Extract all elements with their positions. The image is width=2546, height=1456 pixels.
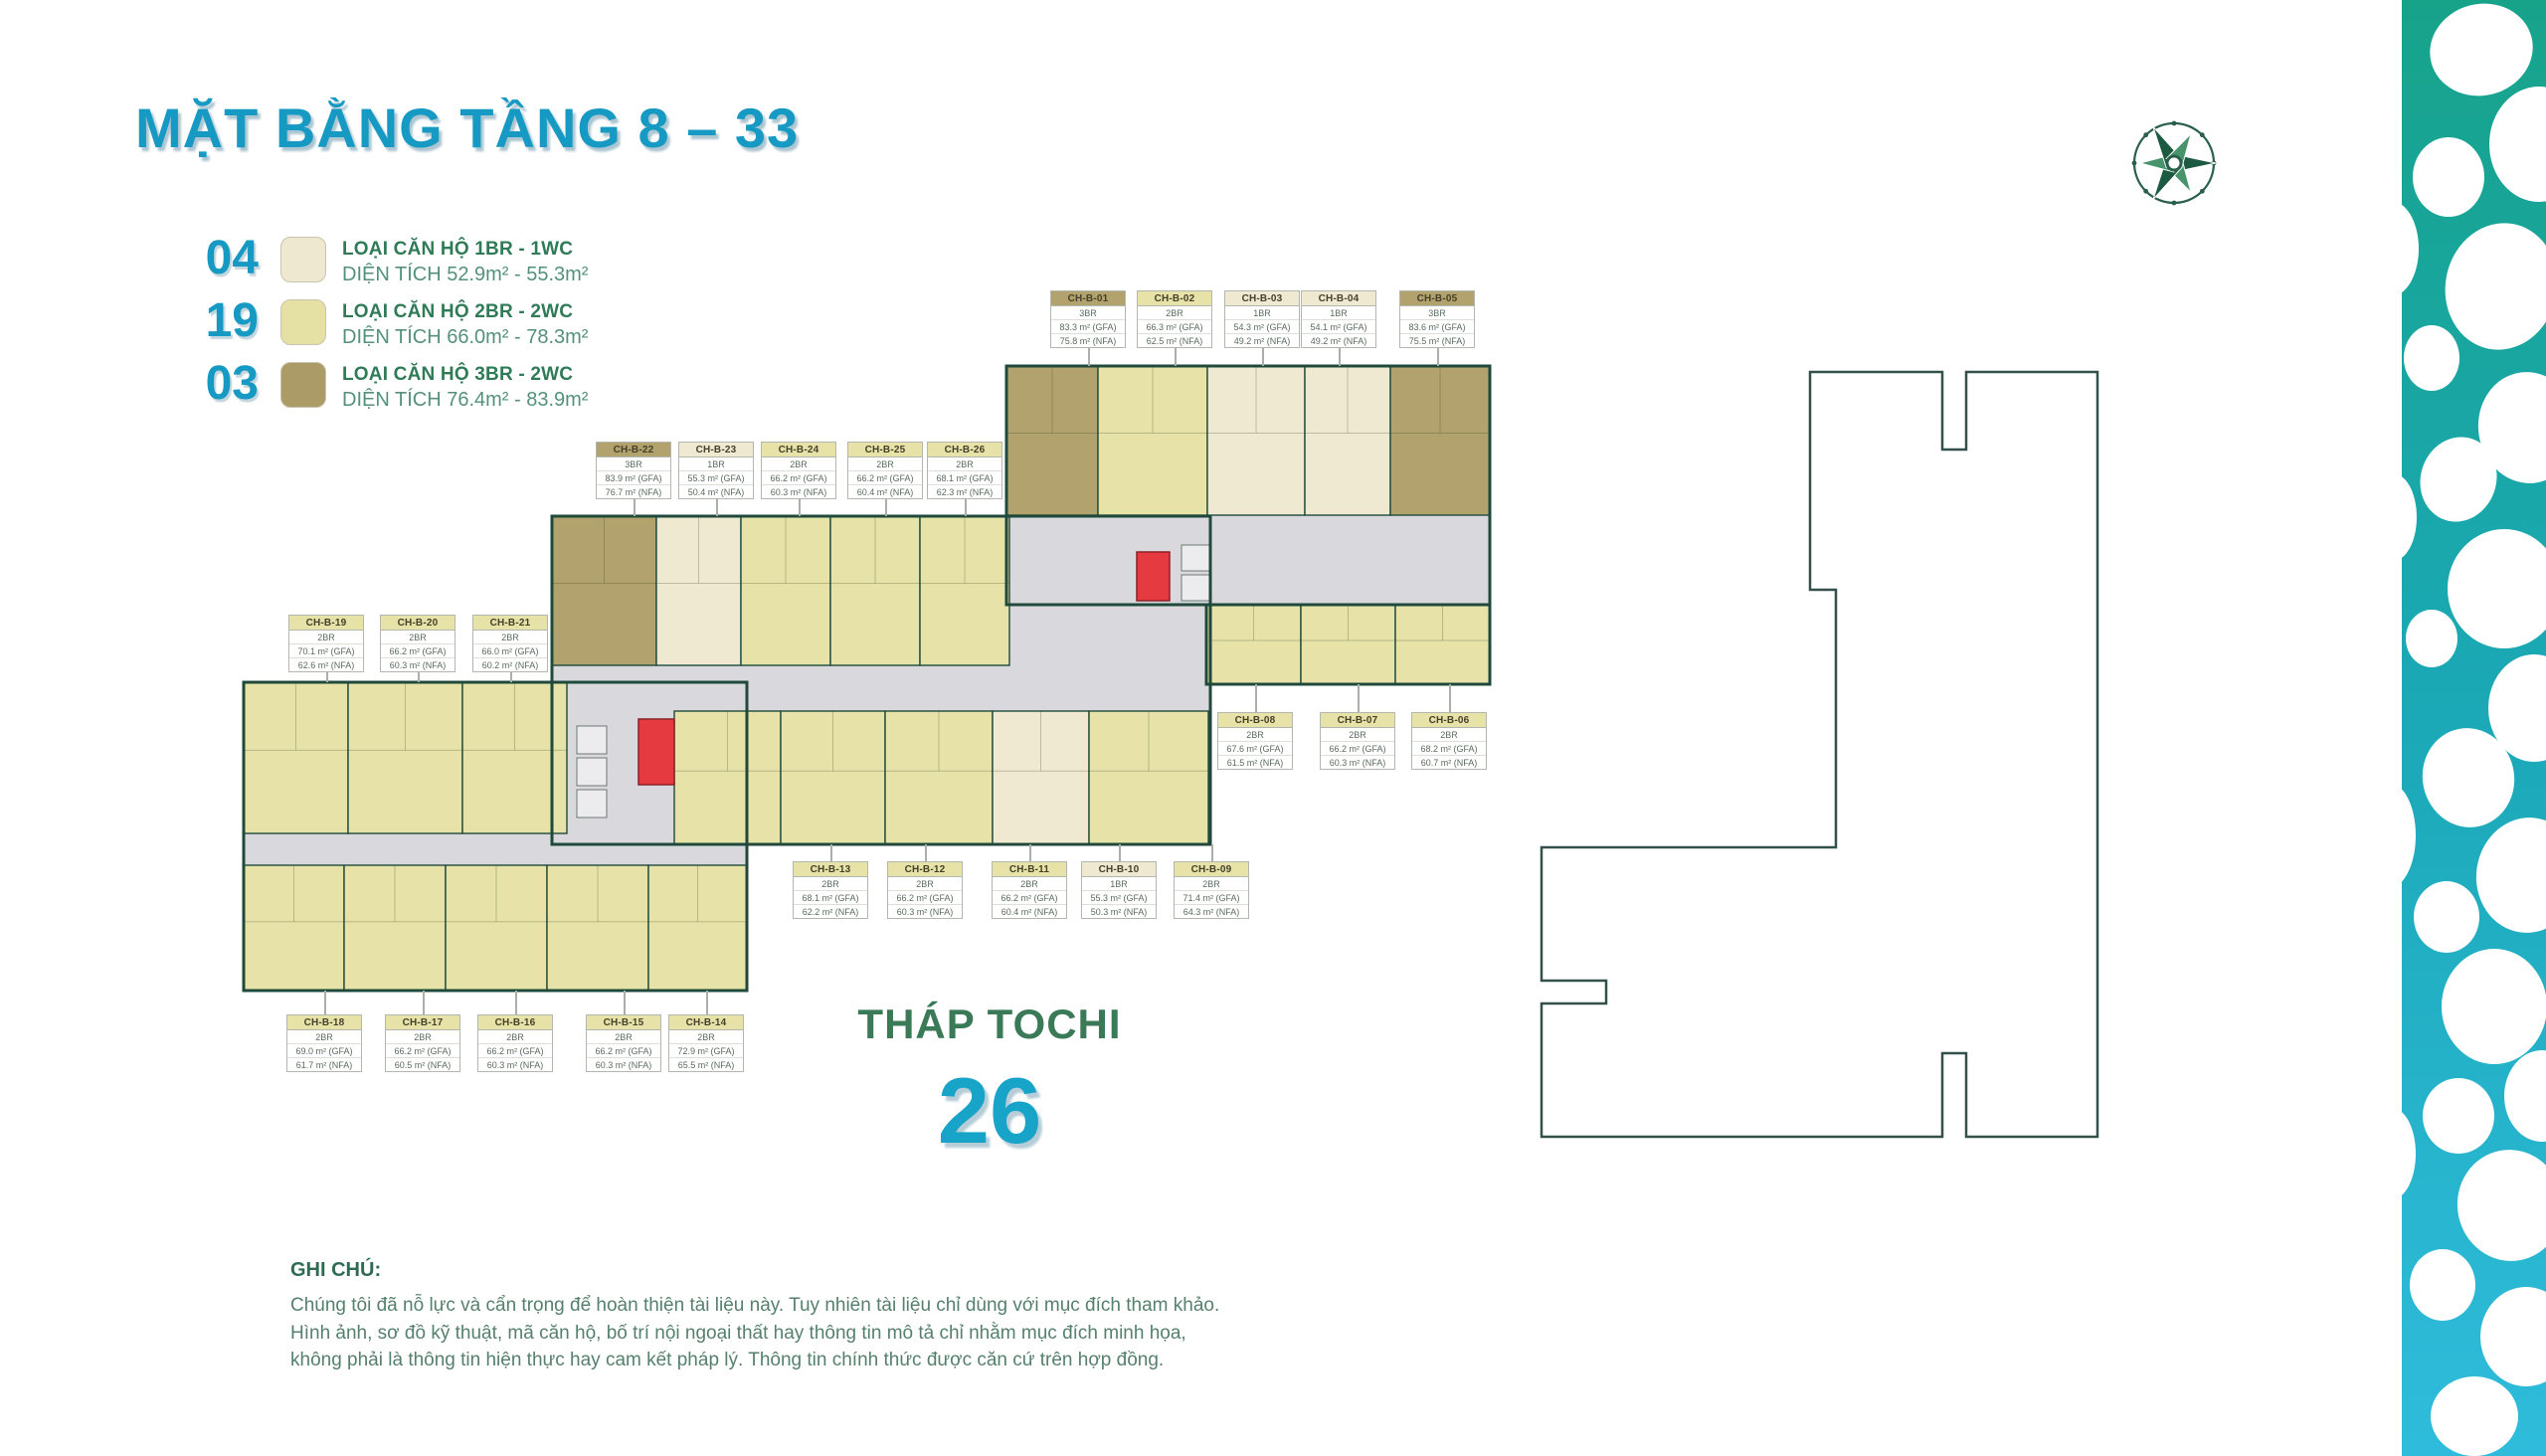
unit-type: 2BR [289,631,363,644]
leader-line [1339,348,1341,366]
unit-code: CH-B-03 [1225,291,1299,306]
unit-gfa: 66.2 m² (GFA) [848,471,922,485]
legend-area-1br: DIỆN TÍCH 52.9m² - 55.3m² [342,264,588,286]
unit-gfa: 68.1 m² (GFA) [794,891,867,905]
unit-nfa: 60.5 m² (NFA) [386,1058,459,1071]
leader-line [1449,684,1451,712]
leader-line [515,991,517,1014]
unit-type: 1BR [679,457,753,471]
legend-label-1br: LOẠI CĂN HỘ 1BR - 1WC [342,239,588,261]
unit-code: CH-B-11 [993,862,1066,877]
unit-tag-CH-B-03: CH-B-031BR54.3 m² (GFA)49.2 m² (NFA) [1224,290,1300,348]
unit-nfa: 61.5 m² (NFA) [1218,756,1292,769]
unit-type: 2BR [287,1030,361,1044]
unit-code: CH-B-20 [381,616,455,631]
unit-code: CH-B-16 [478,1015,552,1030]
leader-line [1211,844,1213,861]
leader-line [706,991,708,1014]
unit-tag-CH-B-16: CH-B-162BR66.2 m² (GFA)60.3 m² (NFA) [477,1014,553,1072]
unit-gfa: 66.2 m² (GFA) [587,1044,660,1058]
leader-line [830,844,832,861]
unit-code: CH-B-12 [888,862,962,877]
unit-type: 3BR [597,457,670,471]
unit-code: CH-B-02 [1138,291,1211,306]
unit-type: 2BR [928,457,1001,471]
unit-type: 2BR [1321,728,1394,742]
unit-code: CH-B-09 [1175,862,1248,877]
leader-line [624,991,626,1014]
unit-nfa: 75.5 m² (NFA) [1400,334,1474,347]
unit-gfa: 71.4 m² (GFA) [1175,891,1248,905]
developer-logo-icon [2124,111,2224,211]
legend-row-1br: 04 LOẠI CĂN HỘ 1BR - 1WC DIỆN TÍCH 52.9m… [179,237,588,282]
leader-line [1255,684,1257,712]
leader-line [1088,348,1090,366]
unit-gfa: 67.6 m² (GFA) [1218,742,1292,756]
unit-type: 2BR [478,1030,552,1044]
unit-gfa: 66.2 m² (GFA) [386,1044,459,1058]
unit-tag-CH-B-21: CH-B-212BR66.0 m² (GFA)60.2 m² (NFA) [472,615,548,672]
unit-gfa: 83.9 m² (GFA) [597,471,670,485]
unit-nfa: 60.4 m² (NFA) [993,905,1066,918]
legend-swatch-2br [280,299,326,345]
legend-area-2br: DIỆN TÍCH 66.0m² - 78.3m² [342,326,588,349]
unit-type: 2BR [888,877,962,891]
leader-line [1262,348,1264,366]
unit-type: 2BR [1412,728,1486,742]
legend-swatch-1br [280,237,326,282]
unit-tag-CH-B-26: CH-B-262BR68.1 m² (GFA)62.3 m² (NFA) [927,442,1002,499]
unit-gfa: 68.2 m² (GFA) [1412,742,1486,756]
unit-code: CH-B-23 [679,443,753,457]
unit-type: 3BR [1051,306,1125,320]
unit-tag-CH-B-05: CH-B-053BR83.6 m² (GFA)75.5 m² (NFA) [1399,290,1475,348]
unit-nfa: 65.5 m² (NFA) [669,1058,743,1071]
unit-type: 2BR [794,877,867,891]
unit-type: 2BR [381,631,455,644]
leader-line [1437,348,1439,366]
legend-row-2br: 19 LOẠI CĂN HỘ 2BR - 2WC DIỆN TÍCH 66.0m… [179,299,588,345]
unit-code: CH-B-26 [928,443,1001,457]
unit-type: 1BR [1302,306,1375,320]
unit-gfa: 83.3 m² (GFA) [1051,320,1125,334]
unit-code: CH-B-14 [669,1015,743,1030]
unit-nfa: 62.5 m² (NFA) [1138,334,1211,347]
unit-gfa: 66.2 m² (GFA) [762,471,835,485]
unit-code: CH-B-01 [1051,291,1125,306]
leader-line [1029,844,1031,861]
unit-tag-CH-B-07: CH-B-072BR66.2 m² (GFA)60.3 m² (NFA) [1320,712,1395,770]
unit-code: CH-B-21 [473,616,547,631]
lift-shape [577,726,607,754]
unit-type: 2BR [669,1030,743,1044]
unit-code: CH-B-06 [1412,713,1486,728]
legend-count-1br: 04 [179,237,259,280]
unit-tag-CH-B-04: CH-B-041BR54.1 m² (GFA)49.2 m² (NFA) [1301,290,1376,348]
unit-gfa: 66.2 m² (GFA) [888,891,962,905]
unit-gfa: 66.2 m² (GFA) [381,644,455,658]
unit-nfa: 49.2 m² (NFA) [1225,334,1299,347]
unit-nfa: 60.3 m² (NFA) [381,658,455,671]
unit-tag-CH-B-23: CH-B-231BR55.3 m² (GFA)50.4 m² (NFA) [678,442,754,499]
unit-tag-CH-B-24: CH-B-242BR66.2 m² (GFA)60.3 m² (NFA) [761,442,836,499]
unit-gfa: 66.3 m² (GFA) [1138,320,1211,334]
corridor-shape [1009,516,1210,665]
unit-code: CH-B-10 [1082,862,1156,877]
unit-gfa: 70.1 m² (GFA) [289,644,363,658]
leader-line [324,991,326,1014]
leader-line [326,672,328,682]
lift-shape [577,758,607,786]
pebble-pattern-decoration [2377,0,2546,1456]
tower-name: THÁP TOCHI [791,1001,1188,1048]
unit-tag-CH-B-02: CH-B-022BR66.3 m² (GFA)62.5 m² (NFA) [1137,290,1212,348]
unit-gfa: 55.3 m² (GFA) [679,471,753,485]
unit-gfa: 55.3 m² (GFA) [1082,891,1156,905]
unit-tag-CH-B-17: CH-B-172BR66.2 m² (GFA)60.5 m² (NFA) [385,1014,460,1072]
page-title: MẶT BẰNG TẦNG 8 – 33 [135,95,799,160]
unit-tag-CH-B-20: CH-B-202BR66.2 m² (GFA)60.3 m² (NFA) [380,615,455,672]
unit-gfa: 66.2 m² (GFA) [478,1044,552,1058]
unit-nfa: 62.3 m² (NFA) [928,485,1001,498]
unit-gfa: 54.3 m² (GFA) [1225,320,1299,334]
unit-tag-CH-B-13: CH-B-132BR68.1 m² (GFA)62.2 m² (NFA) [793,861,868,919]
unit-tag-CH-B-14: CH-B-142BR72.9 m² (GFA)65.5 m² (NFA) [668,1014,744,1072]
unit-tag-CH-B-22: CH-B-223BR83.9 m² (GFA)76.7 m² (NFA) [596,442,671,499]
legend-count-2br: 19 [179,299,259,343]
unit-gfa: 72.9 m² (GFA) [669,1044,743,1058]
unit-tag-CH-B-06: CH-B-062BR68.2 m² (GFA)60.7 m² (NFA) [1411,712,1487,770]
unit-type: 2BR [587,1030,660,1044]
unit-nfa: 60.7 m² (NFA) [1412,756,1486,769]
unit-code: CH-B-15 [587,1015,660,1030]
elevator-core [638,719,674,785]
leader-line [716,499,718,516]
unit-gfa: 66.2 m² (GFA) [993,891,1066,905]
unit-tag-CH-B-19: CH-B-192BR70.1 m² (GFA)62.6 m² (NFA) [288,615,364,672]
unit-type: 1BR [1225,306,1299,320]
unit-tag-CH-B-10: CH-B-101BR55.3 m² (GFA)50.3 m² (NFA) [1081,861,1157,919]
unit-tag-CH-B-09: CH-B-092BR71.4 m² (GFA)64.3 m² (NFA) [1174,861,1249,919]
unit-tag-CH-B-12: CH-B-122BR66.2 m² (GFA)60.3 m² (NFA) [887,861,963,919]
leader-line [510,672,512,682]
unit-code: CH-B-19 [289,616,363,631]
unit-gfa: 83.6 m² (GFA) [1400,320,1474,334]
unit-nfa: 50.4 m² (NFA) [679,485,753,498]
unit-nfa: 50.3 m² (NFA) [1082,905,1156,918]
unit-type: 2BR [1218,728,1292,742]
leader-line [799,499,801,516]
unit-nfa: 60.3 m² (NFA) [888,905,962,918]
leader-line [418,672,420,682]
unit-code: CH-B-04 [1302,291,1375,306]
leader-line [1175,348,1177,366]
elevator-core [1137,552,1170,601]
unit-nfa: 64.3 m² (NFA) [1175,905,1248,918]
leader-line [1358,684,1360,712]
leader-line [925,844,927,861]
leader-line [885,499,887,516]
unit-type: 2BR [1175,877,1248,891]
unit-gfa: 54.1 m² (GFA) [1302,320,1375,334]
unit-nfa: 75.8 m² (NFA) [1051,334,1125,347]
unit-tag-CH-B-11: CH-B-112BR66.2 m² (GFA)60.4 m² (NFA) [992,861,1067,919]
lift-shape [1182,545,1209,571]
unit-type: 2BR [386,1030,459,1044]
unit-nfa: 60.3 m² (NFA) [762,485,835,498]
unit-code: CH-B-24 [762,443,835,457]
unit-type: 1BR [1082,877,1156,891]
unit-tag-CH-B-15: CH-B-152BR66.2 m² (GFA)60.3 m² (NFA) [586,1014,661,1072]
unit-tag-CH-B-01: CH-B-013BR83.3 m² (GFA)75.8 m² (NFA) [1050,290,1126,348]
unit-type: 2BR [762,457,835,471]
lift-shape [1182,575,1209,601]
disclaimer-note: GHI CHÚ: Chúng tôi đã nỗ lực và cẩn trọn… [290,1259,1235,1374]
unit-gfa: 66.2 m² (GFA) [1321,742,1394,756]
unit-tag-CH-B-08: CH-B-082BR67.6 m² (GFA)61.5 m² (NFA) [1217,712,1293,770]
unit-gfa: 68.1 m² (GFA) [928,471,1001,485]
unit-gfa: 66.0 m² (GFA) [473,644,547,658]
unit-nfa: 76.7 m² (NFA) [597,485,670,498]
leader-line [423,991,425,1014]
unit-code: CH-B-05 [1400,291,1474,306]
unit-tag-CH-B-25: CH-B-252BR66.2 m² (GFA)60.4 m² (NFA) [847,442,923,499]
unit-nfa: 60.2 m² (NFA) [473,658,547,671]
tower-caption: THÁP TOCHI 26 [791,1001,1188,1158]
unit-nfa: 62.6 m² (NFA) [289,658,363,671]
unit-nfa: 62.2 m² (NFA) [794,905,867,918]
unit-type: 2BR [848,457,922,471]
lift-shape [577,790,607,818]
unit-type: 2BR [473,631,547,644]
unit-tag-CH-B-18: CH-B-182BR69.0 m² (GFA)61.7 m² (NFA) [286,1014,362,1072]
unit-code: CH-B-22 [597,443,670,457]
unit-nfa: 61.7 m² (NFA) [287,1058,361,1071]
tower-unit-total: 26 [791,1064,1188,1158]
unit-type: 3BR [1400,306,1474,320]
leader-line [1119,844,1121,861]
unit-nfa: 60.4 m² (NFA) [848,485,922,498]
unit-code: CH-B-13 [794,862,867,877]
floor-plan-poster: MẶT BẰNG TẦNG 8 – 33 04 LOẠI CĂN HỘ 1BR … [0,0,2546,1456]
unit-code: CH-B-07 [1321,713,1394,728]
unit-code: CH-B-25 [848,443,922,457]
unit-type: 2BR [993,877,1066,891]
note-heading: GHI CHÚ: [290,1259,1235,1282]
unit-nfa: 60.3 m² (NFA) [478,1058,552,1071]
unit-code: CH-B-08 [1218,713,1292,728]
unit-nfa: 49.2 m² (NFA) [1302,334,1375,347]
unit-nfa: 60.3 m² (NFA) [1321,756,1394,769]
unit-nfa: 60.3 m² (NFA) [587,1058,660,1071]
unit-gfa: 69.0 m² (GFA) [287,1044,361,1058]
leader-line [965,499,967,516]
unit-code: CH-B-18 [287,1015,361,1030]
note-body: Chúng tôi đã nỗ lực và cẩn trọng để hoàn… [290,1292,1235,1374]
unit-type: 2BR [1138,306,1211,320]
leader-line [634,499,636,516]
unit-code: CH-B-17 [386,1015,459,1030]
legend-label-2br: LOẠI CĂN HỘ 2BR - 2WC [342,301,588,323]
